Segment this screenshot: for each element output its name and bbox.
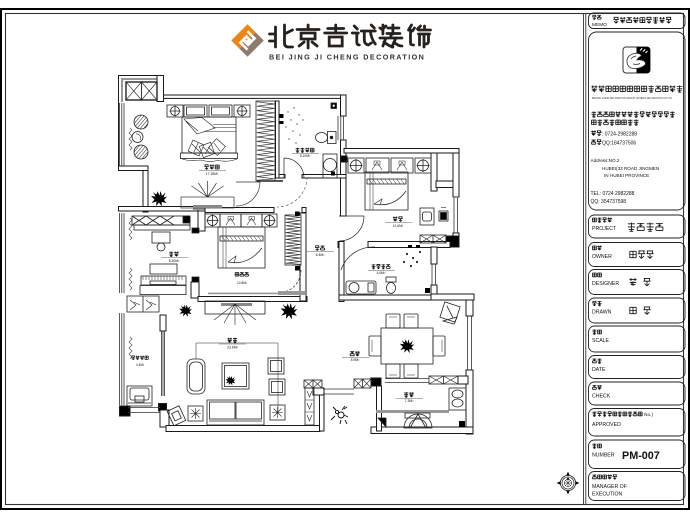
svg-text:8.20M²: 8.20M² [169,259,180,263]
svg-text:8.9M²: 8.9M² [351,358,361,362]
svg-text:HUBEI(33 ROAD JINGMEN: HUBEI(33 ROAD JINGMEN [602,166,659,171]
svg-text:TEL: 0724 2982288: TEL: 0724 2982288 [591,191,635,197]
svg-text:NUMBER: NUMBER [592,453,615,459]
svg-text:No.): No.) [644,412,653,418]
svg-text:SCALE: SCALE [592,338,610,344]
svg-text:7.3M²: 7.3M² [405,399,415,403]
svg-text:QQ: 354737598: QQ: 354737598 [591,199,627,205]
svg-text:DESIGNER: DESIGNER [592,281,619,287]
svg-text:4.6M²: 4.6M² [377,271,387,275]
svg-text:APPROVED: APPROVED [592,422,621,428]
svg-text:17.25M²: 17.25M² [206,172,219,176]
svg-text:Address:NO.2: Address:NO.2 [591,158,620,163]
svg-text:EXECUTION: EXECUTION [592,492,623,498]
svg-text:MEMO: MEMO [592,22,607,28]
svg-text:4.4M²: 4.4M² [136,363,144,367]
svg-text:MANAGER OF: MANAGER OF [592,484,627,490]
svg-text:10.8M²: 10.8M² [237,281,247,285]
svg-text:PROJECT: PROJECT [592,226,617,232]
svg-text:CHECK: CHECK [592,394,611,400]
svg-text:23.6M²: 23.6M² [227,346,238,350]
svg-text:BEI JING JI CHENG DECORATION: BEI JING JI CHENG DECORATION [269,53,425,62]
svg-text:5.10M²: 5.10M² [300,154,311,158]
svg-text:11.6M²: 11.6M² [393,224,404,228]
svg-text:: 0724-2982288: : 0724-2982288 [602,132,637,138]
svg-text:DRAWN: DRAWN [592,310,612,316]
svg-text:PM-007: PM-007 [622,450,660,462]
svg-text:DATE: DATE [592,367,606,373]
svg-text:6.4M²: 6.4M² [316,253,326,257]
svg-text:OWNER: OWNER [592,254,612,260]
svg-text:IN HUBEI PROVINCE: IN HUBEI PROVINCE [604,173,649,178]
svg-text:BEIJING DUFEI DECORATION GROUP: BEIJING DUFEI DECORATION GROUP JICHENG D… [592,97,672,100]
svg-text:QQ:184737506: QQ:184737506 [602,141,636,147]
